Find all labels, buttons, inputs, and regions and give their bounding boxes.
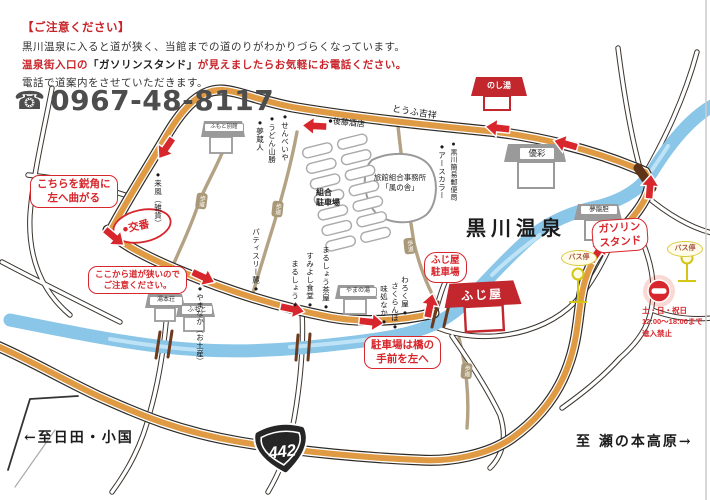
callout-narrow-line1: ここから道が狭いので — [95, 269, 180, 280]
callout-bridge-line2: 手前を左へ — [371, 353, 434, 367]
callout-turn-left-line2: 左へ曲がる — [37, 192, 111, 206]
office-label: 旅館組合事務所 「風の舎」 — [368, 173, 432, 193]
phone-number: 0967-48-8117 — [50, 84, 274, 117]
direction-left: ←至日田・小国 — [24, 427, 134, 447]
destination-label: ふじ屋 — [456, 285, 509, 305]
route-shield: 442 — [257, 425, 307, 473]
shop-yamanaka: ●やまなか（お土産） — [196, 284, 204, 366]
parking-lot-label: 組合 駐車場 — [316, 188, 350, 209]
shop-earthcolor: ●アースカラー — [438, 142, 446, 200]
notice-line2-quote: 「ガソリンスタンド」 — [88, 59, 198, 71]
callout-fujiya-parking: ふじ屋 駐車場 — [424, 252, 467, 283]
access-map-page: { "notice": { "title": "【ご注意ください】", "lin… — [0, 0, 710, 500]
phone-icon: ☎ — [14, 86, 45, 116]
no-entry-line2: 12:00～18:00まで — [642, 316, 703, 327]
building-yusai: 優彩 — [519, 147, 555, 160]
shop-yumekurando: ●夢蔵人 — [256, 118, 264, 152]
shop-udon: ●うどん山勝 — [268, 114, 276, 164]
notice-line1: 黒川温泉に入ると道が狭く、当館までの道のりがわかりづらくなっています。 — [22, 39, 405, 54]
callout-fujiya-parking-line1: ふじ屋 — [431, 255, 460, 267]
callout-turn-left: こちらを鋭角に 左へ曲がる — [30, 175, 118, 208]
shop-sumiyoshi: すみよし食堂● — [306, 252, 314, 310]
phone-block: ☎ 0967-48-8117 — [14, 84, 274, 117]
parking-lot-line2: 駐車場 — [316, 198, 350, 208]
bus-stop-label: バス停 — [561, 250, 597, 266]
callout-bridge-parking: 駐車場は橋の 手前を左へ — [364, 336, 441, 369]
shop-marusho-chaya: まるしょう茶屋● — [322, 246, 330, 312]
shop-ajidokoro: 味処なか● — [380, 285, 388, 327]
bus-stop-label: バス停 — [667, 241, 703, 257]
sidewalk-badge: 歩道 — [271, 200, 284, 217]
shop-post-office: ●黒川簡易郵便局 — [450, 141, 457, 201]
noshiyu-label: のし湯 — [478, 80, 520, 91]
notice-title: 【ご注意ください】 — [22, 19, 130, 35]
no-entry-line1: 土・日・祝日 — [642, 305, 703, 316]
callout-gas-station: ガソリン スタンド — [591, 217, 649, 254]
shop-raifu: ●来風（雑貨） — [154, 170, 162, 228]
shop-senbeiya: ●せんべいや — [281, 112, 289, 162]
callout-narrow-road: ここから道が狭いので ご注意ください。 — [88, 266, 187, 294]
callout-narrow-line2: ご注意ください。 — [95, 280, 180, 291]
building-yumerindo: 夢龍胆 — [580, 205, 618, 215]
no-entry-line3: 進入禁止 — [642, 328, 703, 339]
callout-bridge-line1: 駐車場は橋の — [371, 339, 434, 353]
office-line2: 「風の舎」 — [368, 183, 432, 193]
shop-patisserie: パティスリー麓● — [252, 228, 260, 294]
route-shield-number: 442 — [266, 441, 297, 462]
building-yumotoso: 湯本荘 — [149, 296, 183, 306]
shop-sakuranbo: さくらんぼ● — [391, 282, 399, 332]
parking-lot-line1: 組合 — [316, 188, 350, 198]
no-entry-icon — [643, 275, 675, 307]
sidewalk-badge: 歩道 — [403, 237, 416, 254]
sidewalk-badge: 歩道 — [195, 192, 208, 209]
callout-fujiya-parking-line2: 駐車場 — [431, 267, 460, 279]
callout-gas-line2: スタンド — [599, 234, 642, 251]
area-title: 黒川温泉 — [466, 212, 566, 241]
office-line1: 旅館組合事務所 — [368, 173, 432, 183]
shop-marusho: まるしょう● — [291, 260, 299, 310]
shop-warokuya: わろく屋● — [401, 276, 409, 318]
no-entry-text: 土・日・祝日 12:00～18:00まで 進入禁止 — [642, 305, 703, 339]
notice-line2-post: が見えましたらお気軽にお電話ください。 — [198, 59, 407, 71]
notice-line2: 温泉街入口の「ガソリンスタンド」が見えましたらお気軽にお電話ください。 — [22, 57, 407, 72]
building-yamanoyu: やまの湯 — [339, 287, 377, 297]
sidewalk-badge: 歩道 — [460, 363, 472, 380]
direction-right: 至 瀬の本高原→ — [576, 431, 693, 451]
callout-turn-left-line1: こちらを鋭角に — [37, 178, 111, 192]
building-fumoto-bekkan: ふもと別館 — [204, 123, 244, 132]
notice-line2-pre: 温泉街入口の — [22, 59, 88, 71]
